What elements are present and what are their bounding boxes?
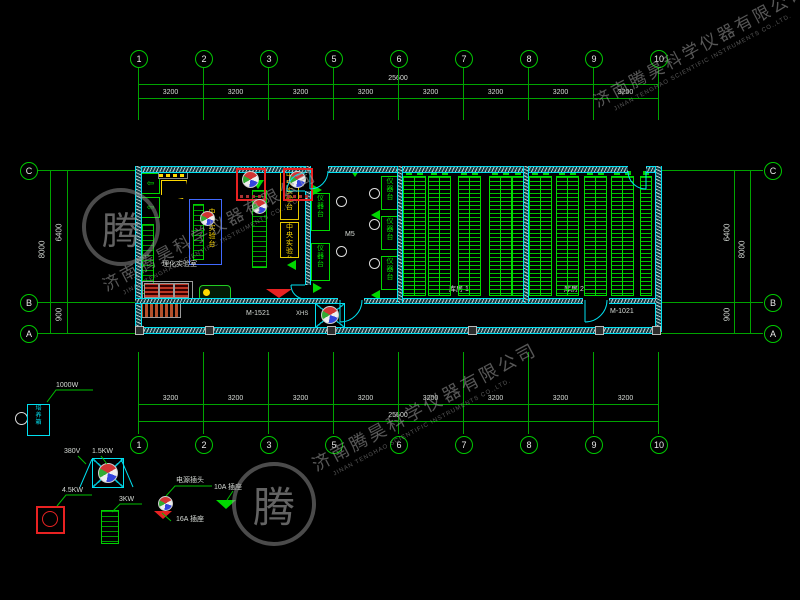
grid-bubble-top: 5 xyxy=(325,50,343,68)
grid-bubble-bottom: 5 xyxy=(325,436,343,454)
dim-bay-bottom: 3200 xyxy=(351,395,381,403)
dim-line-left-outer xyxy=(50,170,51,333)
grid-stem-top xyxy=(463,68,464,120)
bench-label: 仪器台 xyxy=(316,245,326,269)
dim-tick xyxy=(463,401,464,408)
dim-bay-top: 3200 xyxy=(156,89,186,97)
grid-stem-top xyxy=(203,68,204,120)
exhaust-wedge-icon xyxy=(313,185,322,195)
bench-label: 仪器台 xyxy=(385,218,395,242)
socket-16a-symbol xyxy=(154,511,172,519)
grid-bubble-top: 10 xyxy=(650,50,668,68)
red-triangle-symbol xyxy=(266,289,292,298)
grid-bubble-left: C xyxy=(20,162,38,180)
stool xyxy=(369,188,380,199)
wall-left xyxy=(135,166,142,332)
fan-icon xyxy=(252,199,267,214)
dim-left-overall: 8000 xyxy=(38,235,47,265)
oven-circle xyxy=(42,511,58,527)
grid-stem-top xyxy=(333,68,334,120)
machine-knob xyxy=(203,289,210,296)
dim-left-lower: 900 xyxy=(55,300,64,330)
watermark-en: JINAN TENGHAO SCIENTIFIC INSTRUMENTS CO.… xyxy=(613,1,800,112)
grid-stem-top xyxy=(658,68,659,120)
legend-fan-voltage: 380V xyxy=(64,448,80,456)
bench-label: 仪器台 xyxy=(316,195,326,219)
dim-bay-bottom: 3200 xyxy=(286,395,316,403)
watermark-logo: 腾 xyxy=(232,462,316,546)
grid-stem-bottom xyxy=(333,352,334,434)
grid-stem-bottom xyxy=(658,352,659,434)
wall-bench-yellow: 中央实验台 xyxy=(280,222,299,258)
dim-tick xyxy=(333,95,334,102)
legend-heater-power: 1000W xyxy=(56,382,78,390)
dim-tick xyxy=(138,95,139,102)
watermark-logo-char: 腾 xyxy=(253,474,295,535)
storage-bench-column xyxy=(439,176,451,296)
wall-post xyxy=(135,326,144,335)
grid-stem-bottom xyxy=(268,352,269,434)
legend-oven-symbol xyxy=(36,506,65,534)
dim-bay-top: 3200 xyxy=(221,89,251,97)
storage-bench-column xyxy=(414,176,426,296)
legend-cabinet-symbol xyxy=(101,510,119,544)
door-label-left: M-1521 xyxy=(246,310,270,318)
oven-symbol xyxy=(144,283,159,298)
grid-row-line-right xyxy=(660,302,763,303)
grid-bubble-bottom: 10 xyxy=(650,436,668,454)
dim-tick xyxy=(593,95,594,102)
dim-tick xyxy=(268,401,269,408)
dim-right-lower: 900 xyxy=(723,300,732,330)
dim-tick xyxy=(731,333,738,334)
dim-bay-bottom: 3200 xyxy=(546,395,576,403)
watermark: 济南腾昊科学仪器有限公司 JINAN TENGHAO SCIENTIFIC IN… xyxy=(307,336,545,484)
dim-tick xyxy=(64,170,71,171)
grid-bubble-top: 3 xyxy=(260,50,278,68)
wall-post xyxy=(327,326,336,335)
grid-bubble-bottom: 3 xyxy=(260,436,278,454)
storage-bench-column xyxy=(500,176,512,296)
door-arc xyxy=(585,300,607,322)
bench-label: 仪器台 xyxy=(385,258,395,282)
grid-stem-top xyxy=(398,68,399,120)
wall-post xyxy=(595,326,604,335)
dim-tick xyxy=(138,401,139,408)
dim-bay-bottom: 3200 xyxy=(481,395,511,403)
stool xyxy=(336,246,347,257)
plug-icon xyxy=(158,496,173,511)
wall-corridor-1 xyxy=(135,298,338,304)
fan-icon xyxy=(242,171,259,188)
storage-bench-column xyxy=(640,176,652,296)
wall-mid-right xyxy=(397,166,403,302)
stool xyxy=(369,258,380,269)
grid-bubble-bottom: 9 xyxy=(585,436,603,454)
dim-tick xyxy=(658,95,659,102)
grid-row-line-left xyxy=(37,333,135,334)
room-label-lab: 理化实验室 xyxy=(162,261,197,269)
grid-stem-bottom xyxy=(463,352,464,434)
wall-top-2 xyxy=(328,166,628,173)
dim-tick xyxy=(64,333,71,334)
wall-right xyxy=(655,166,662,332)
grid-bubble-top: 8 xyxy=(520,50,538,68)
exhaust-wedge-icon xyxy=(313,283,322,293)
fan-icon xyxy=(289,171,306,188)
fan-icon xyxy=(321,306,339,324)
grid-bubble-top: 7 xyxy=(455,50,473,68)
grid-bubble-right: C xyxy=(764,162,782,180)
grid-stem-bottom xyxy=(528,352,529,434)
grid-bubble-bottom: 1 xyxy=(130,436,148,454)
grid-bubble-top: 6 xyxy=(390,50,408,68)
legend-socket10-label: 10A 插座 xyxy=(214,484,242,492)
central-bench-outline: 中央实验台 xyxy=(189,199,222,265)
grid-bubble-top: 1 xyxy=(130,50,148,68)
grid-bubble-bottom: 8 xyxy=(520,436,538,454)
dim-bay-top: 3200 xyxy=(481,89,511,97)
dim-tick xyxy=(333,401,334,408)
door-label-right: M-1021 xyxy=(610,308,634,316)
grid-stem-top xyxy=(528,68,529,120)
legend-oven-power: 4.5KW xyxy=(62,487,83,495)
grid-stem-bottom xyxy=(138,352,139,434)
watermark: 济南腾昊科学仪器有限公司 JINAN TENGHAO SCIENTIFIC IN… xyxy=(588,0,800,119)
door-arrow-icon: ⇦ xyxy=(141,197,160,218)
dim-left-upper: 6400 xyxy=(55,218,64,248)
dim-bay-top: 3200 xyxy=(351,89,381,97)
grid-stem-bottom xyxy=(593,352,594,434)
leader-line xyxy=(57,495,92,506)
grid-stem-top xyxy=(593,68,594,120)
dim-bay-top: 3200 xyxy=(286,89,316,97)
grid-bubble-left: A xyxy=(20,325,38,343)
grid-bubble-right: B xyxy=(764,294,782,312)
legend-plug-label: 电源插头 xyxy=(176,477,204,485)
grid-row-line-right xyxy=(660,333,763,334)
grid-row-line-left xyxy=(37,170,135,171)
dim-tick xyxy=(731,170,738,171)
stool xyxy=(369,219,380,230)
oven-symbol xyxy=(159,283,174,298)
oven-symbol xyxy=(174,283,189,298)
legend-fan-power: 1.5KW xyxy=(92,448,113,456)
fan-icon xyxy=(200,211,215,226)
dim-right-upper: 6400 xyxy=(723,218,732,248)
grid-bubble-bottom: 6 xyxy=(390,436,408,454)
grid-bubble-bottom: 2 xyxy=(195,436,213,454)
dim-tick xyxy=(268,95,269,102)
wall-bench-green: 仪器台 xyxy=(311,193,330,231)
grid-bubble-bottom: 7 xyxy=(455,436,473,454)
dim-bay-top: 3200 xyxy=(611,89,641,97)
dim-line-left-inner xyxy=(67,170,68,333)
grid-bubble-right: A xyxy=(764,325,782,343)
flag-symbol xyxy=(161,180,187,199)
cad-floor-plan-canvas: 25600 25600 8000 6400 900 6400 8000 900 … xyxy=(0,0,800,600)
grid-row-line-right xyxy=(660,170,763,171)
dim-tick xyxy=(398,401,399,408)
storage-bench-column xyxy=(469,176,481,296)
dim-bay-bottom: 3200 xyxy=(221,395,251,403)
wall-post xyxy=(468,326,477,335)
legend-cabinet-power: 3KW xyxy=(119,496,134,504)
door-arc xyxy=(291,285,305,299)
legend-socket16-label: 16A 插座 xyxy=(176,516,204,524)
dim-tick xyxy=(463,95,464,102)
stool xyxy=(336,196,347,207)
dim-bay-bottom: 3200 xyxy=(156,395,186,403)
dim-tick xyxy=(528,95,529,102)
socket-10a-symbol xyxy=(216,500,236,509)
watermark-cn: 济南腾昊科学仪器有限公司 xyxy=(307,336,542,477)
grid-row-line-left xyxy=(37,302,135,303)
dim-tick xyxy=(203,95,204,102)
grid-bubble-top: 2 xyxy=(195,50,213,68)
leader-line xyxy=(47,390,93,402)
dim-tick xyxy=(203,401,204,408)
storage-bench-column xyxy=(595,176,607,296)
corridor-shelf xyxy=(139,303,181,318)
leader-line xyxy=(166,486,212,496)
room-label-mid: M5 xyxy=(345,231,355,239)
dim-tick xyxy=(593,401,594,408)
storage-bench-column xyxy=(567,176,579,296)
exhaust-wedge-icon xyxy=(371,210,380,220)
wall-corridor-3 xyxy=(609,298,656,304)
wall-post xyxy=(652,326,661,335)
grid-stem-top xyxy=(138,68,139,120)
storage-bench-column xyxy=(622,176,634,296)
grid-stem-top xyxy=(268,68,269,120)
grid-stem-bottom xyxy=(398,352,399,434)
exhaust-wedge-icon xyxy=(287,260,296,270)
dim-tick xyxy=(398,95,399,102)
leader-line xyxy=(227,491,233,500)
grid-stem-bottom xyxy=(203,352,204,434)
dim-tick xyxy=(731,302,738,303)
dim-right-overall: 8000 xyxy=(738,235,747,265)
incubator-symbol: 培养箱 xyxy=(27,404,50,436)
dim-bay-top: 3200 xyxy=(416,89,446,97)
wall-storage-divider xyxy=(523,166,529,302)
wall-mid-left-b xyxy=(305,191,311,285)
dim-tick xyxy=(528,401,529,408)
grid-bubble-left: B xyxy=(20,294,38,312)
dim-line-right-outer xyxy=(750,170,751,333)
grid-bubble-top: 9 xyxy=(585,50,603,68)
wall-bench-green: 仪器台 xyxy=(311,243,330,281)
dim-tick xyxy=(64,302,71,303)
bench-label: 仪器台 xyxy=(385,178,395,202)
storage-bench-column xyxy=(540,176,552,296)
dim-line-right-inner xyxy=(734,170,735,333)
dim-tick xyxy=(658,401,659,408)
fan-icon xyxy=(98,463,118,483)
dim-bay-bottom: 3200 xyxy=(416,395,446,403)
dim-bay-bottom: 3200 xyxy=(611,395,641,403)
wall-post xyxy=(205,326,214,335)
fan-label: XHS xyxy=(296,310,308,318)
dim-bay-top: 3200 xyxy=(546,89,576,97)
